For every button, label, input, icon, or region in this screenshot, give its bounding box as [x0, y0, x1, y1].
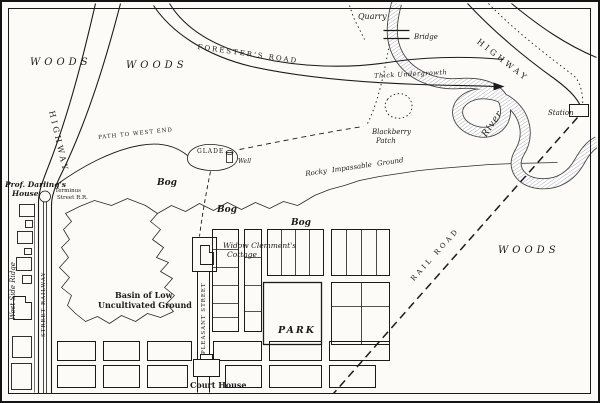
label-court-house: Court House [190, 381, 247, 389]
label-blackberry-patch-line1: Blackberry [372, 129, 411, 136]
label-well: Well [238, 159, 251, 165]
label-basin-line1: Basin of Low [115, 291, 173, 299]
label-widow-cottage-line2: Cottage [227, 251, 257, 259]
label-bog-1: Bog [157, 179, 177, 188]
map-page: WOODS WOODS WOODS HIGHWAY HIGHWAY FOREST… [0, 0, 600, 403]
label-station: Station [548, 110, 574, 117]
label-street-railway: STREET RAILWAY [42, 272, 48, 337]
label-pleasant-street: PLEASANT STREET [202, 282, 208, 354]
label-terminus-line1: Terminus [55, 189, 81, 195]
label-woods-northwest: WOODS [30, 58, 92, 68]
path-glade-to-east-dashed [240, 127, 364, 150]
label-glade: GLADE [197, 149, 224, 155]
label-bog-2: Bog [217, 206, 237, 215]
label-woods-east: WOODS [498, 246, 560, 256]
label-terminus-line2: Street R.R. [57, 196, 88, 202]
label-west-side-ridge: West Side Ridge [10, 262, 17, 320]
label-bog-3: Bog [291, 219, 311, 228]
prof-darlings-house [20, 205, 35, 217]
label-blackberry-patch-line2: Patch [376, 138, 396, 145]
label-prof-darlings-line2: House [12, 190, 39, 198]
label-bridge: Bridge [414, 34, 438, 41]
terminus-loop [40, 191, 51, 202]
label-quarry: Quarry [358, 13, 387, 21]
label-woods-north: WOODS [126, 61, 188, 71]
map-frame: WOODS WOODS WOODS HIGHWAY HIGHWAY FOREST… [0, 0, 600, 403]
label-widow-cottage-line1: Widow Clemment's [223, 242, 296, 250]
label-park: PARK [278, 326, 316, 336]
quarry-dotted-line [350, 6, 365, 40]
northeast-highway-edge-2 [512, 4, 597, 58]
footpaths [56, 6, 413, 237]
label-basin-line2: Uncultivated Ground [98, 301, 192, 309]
blackberry-patch-outline [385, 94, 412, 119]
